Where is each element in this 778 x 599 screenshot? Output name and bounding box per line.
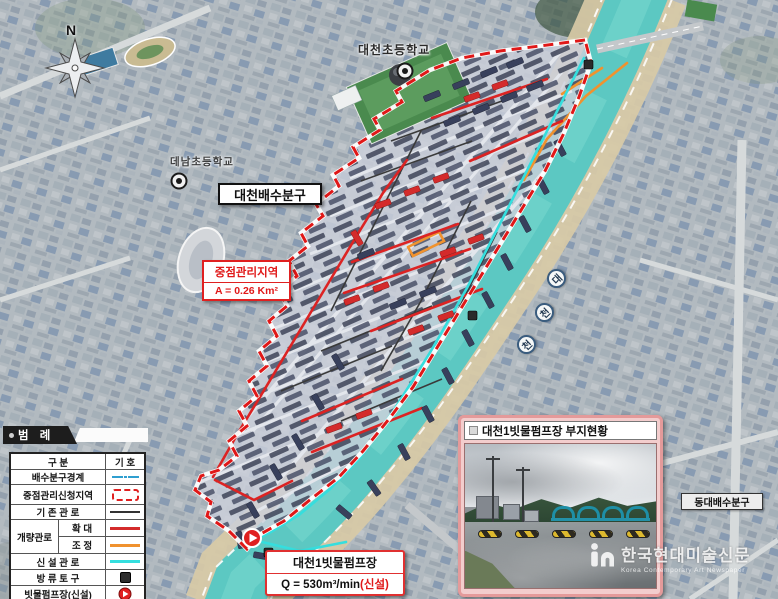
photo-inset-title-bar: 대천1빗물펌프장 부지현황	[464, 421, 657, 440]
photo-inset-title: 대천1빗물펌프장 부지현황	[482, 423, 608, 439]
boundary-symbol	[105, 470, 144, 484]
photo-barriers	[478, 530, 650, 538]
focus-area-title: 중점관리지역	[204, 262, 289, 283]
photo-square-icon	[469, 426, 478, 435]
watermark: 한국현대미술신문 Korea Contemporary Art Newspape…	[589, 542, 750, 574]
focus-zone-symbol	[105, 485, 144, 504]
legend-label: 기 존 관 로	[11, 505, 105, 519]
legend-row-new-pipe: 신 설 관 로	[11, 553, 144, 569]
legend-col-symbol: 기 호	[105, 454, 144, 469]
school-symbol-left	[172, 174, 187, 189]
legend-title-text: 범 례	[18, 427, 54, 443]
focus-area-value: A = 0.26 Km²	[204, 283, 289, 299]
east-district-box: 동대배수분구	[681, 493, 763, 510]
legend-label: 신 설 관 로	[11, 554, 105, 569]
school-symbol-top	[398, 64, 413, 79]
watermark-subtitle: Korea Contemporary Art Newspaper	[621, 567, 750, 574]
pump-icon	[118, 587, 132, 599]
legend-row-pump: 빗물펌프장(신설)	[11, 585, 144, 599]
legend-title: 범 례	[3, 426, 77, 444]
legend-title-tab	[74, 428, 148, 442]
legend-label: 확 대	[59, 520, 105, 536]
photo-building	[476, 496, 499, 519]
district-title-box: 대천배수분구	[218, 183, 322, 205]
new-pipe-symbol	[105, 554, 144, 569]
pump-station-label-box: 대천1빗물펌프장 Q = 530m³/min(신설)	[265, 550, 405, 596]
pump-station-name: 대천1빗물펌프장	[267, 552, 403, 574]
outfall-symbol	[105, 570, 144, 585]
legend-subrow-expand: 확 대	[59, 520, 144, 536]
photo-building	[524, 510, 539, 522]
legend-row-existing: 기 존 관 로	[11, 504, 144, 519]
photo-utility-pole	[522, 467, 524, 522]
north-label: N	[66, 22, 76, 38]
legend-row-outfall: 방 류 토 구	[11, 569, 144, 585]
legend-label: 중점관리신청지역	[11, 485, 105, 504]
photo-bridge-arches	[551, 506, 650, 519]
adjust-pipe-symbol	[105, 537, 144, 553]
legend-label: 빗물펌프장(신설)	[11, 586, 105, 599]
watermark-logo-icon	[589, 542, 616, 569]
legend-label: 배수분구경계	[11, 470, 105, 484]
label-school-daecheon: 대천초등학교	[358, 41, 430, 58]
pump-station-capacity: Q = 530m³/min(신설)	[267, 574, 403, 594]
pump-symbol	[105, 586, 144, 599]
expand-pipe-symbol	[105, 520, 144, 536]
legend-label: 방 류 토 구	[11, 570, 105, 585]
legend-col-category: 구 분	[11, 454, 105, 469]
legend-table: 구 분 기 호 배수분구경계 중점관리신청지역 기 존 관 로 개량관로	[9, 452, 146, 599]
focus-area-box: 중점관리지역 A = 0.26 Km²	[202, 260, 291, 301]
legend-label: 개량관로	[11, 520, 58, 553]
legend-row-boundary: 배수분구경계	[11, 469, 144, 484]
legend-bullet-icon	[9, 433, 14, 438]
legend-header-row: 구 분 기 호	[11, 454, 144, 469]
legend-subrow-adjust: 조 정	[59, 536, 144, 553]
pump-flow-new-tag: (신설)	[360, 579, 389, 591]
legend-row-improved: 개량관로 확 대 조 정	[11, 519, 144, 553]
legend-row-focus-zone: 중점관리신청지역	[11, 484, 144, 504]
existing-pipe-symbol	[105, 505, 144, 519]
photo-utility-pole	[492, 456, 494, 522]
watermark-name: 한국현대미술신문	[621, 542, 750, 566]
photo-bridge-deck	[551, 518, 650, 521]
legend-label: 조 정	[59, 537, 105, 553]
photo-building	[503, 504, 520, 520]
label-school-denam: 데남초등학교	[170, 154, 234, 169]
pump-flow-value: Q = 530m³/min	[281, 579, 360, 591]
pump-station-marker	[243, 529, 261, 547]
map-canvas: N 대천초등학교 데남초등학교 대천배수분구 동대배수분구 중점관리지역 A =…	[0, 0, 778, 599]
